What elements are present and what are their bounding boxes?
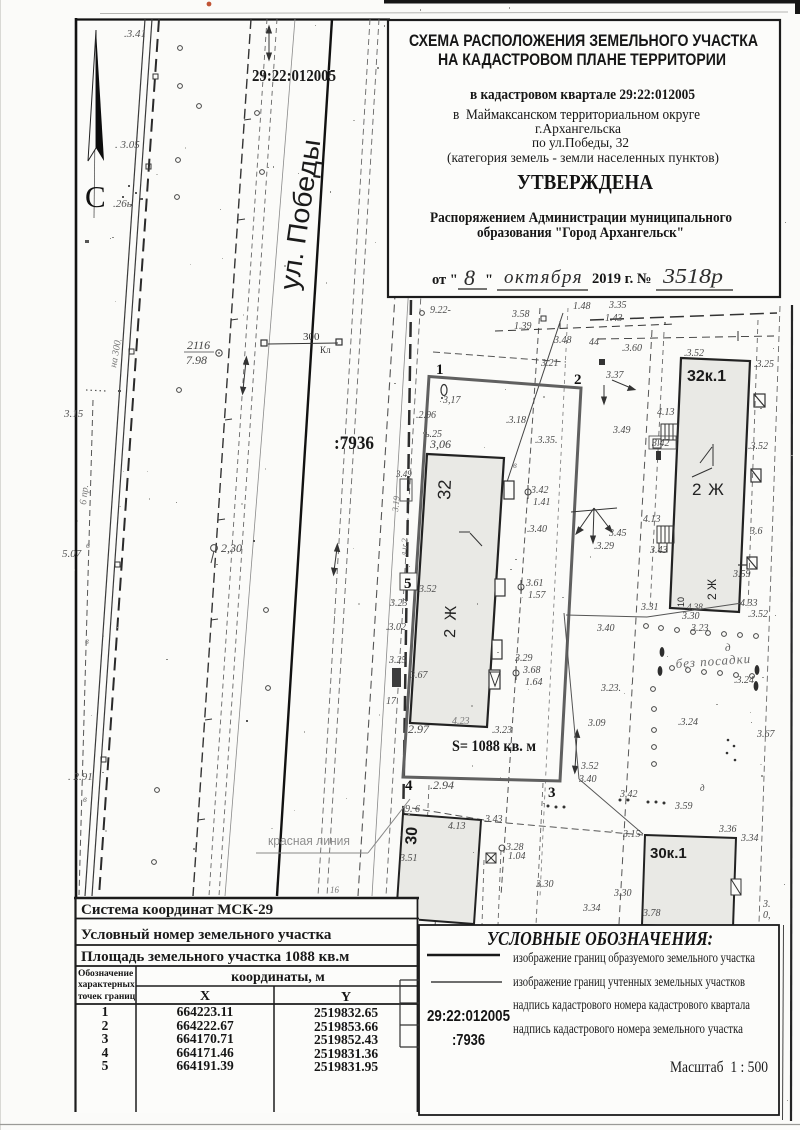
svg-text:(категория земель - земли насе: (категория земель - земли населенных пун… [447, 151, 719, 166]
svg-text:3.34: 3.34 [582, 903, 601, 914]
svg-text:3.30: 3.30 [613, 888, 632, 899]
svg-text:9. 6: 9. 6 [405, 804, 420, 815]
svg-text:3.6: 3.6 [749, 526, 763, 537]
svg-text:1.41: 1.41 [533, 497, 551, 508]
svg-text:в: в [83, 794, 87, 804]
svg-text:2519831.95: 2519831.95 [314, 1059, 378, 1074]
svg-text:Система координат МСК-29: Система координат МСК-29 [81, 902, 273, 918]
svg-text:3.15: 3.15 [63, 408, 84, 420]
svg-text:.3.18: .3.18 [506, 415, 526, 426]
svg-text:характерных: характерных [78, 980, 135, 990]
svg-text:в Маймаксанском территориальн: в Маймаксанском территориальном округе [453, 107, 700, 123]
svg-text:29:22:012005: 29:22:012005 [427, 1008, 510, 1025]
svg-text:3.59: 3.59 [732, 569, 751, 580]
svg-text:по ул.Победы, 32: по ул.Победы, 32 [532, 136, 629, 151]
svg-text:664223.11: 664223.11 [177, 1004, 234, 1019]
svg-text:.3.41: .3.41 [124, 28, 146, 40]
svg-text:.3.02: .3.02 [386, 622, 406, 633]
svg-text:.2.96: .2.96 [416, 410, 436, 421]
svg-text:октября: октября [504, 267, 583, 288]
svg-text:Условный номер земельного учас: Условный номер земельного участка [81, 927, 332, 943]
svg-text:1.48: 1.48 [573, 301, 591, 312]
svg-text:6 пр.: 6 пр. [78, 484, 91, 505]
svg-text:3.30: 3.30 [681, 611, 700, 622]
svg-text:": " [485, 272, 493, 288]
svg-text:7.98: 7.98 [186, 353, 207, 367]
svg-text:красная линия: красная линия [268, 833, 350, 848]
svg-text:3.15: 3.15 [622, 829, 641, 840]
svg-text:Площадь земельного участка 108: Площадь земельного участка 1088 кв.м [81, 949, 349, 965]
svg-text:л и 2: л и 2 [398, 537, 410, 557]
svg-text:НА КАДАСТРОВОМ ПЛАНЕ ТЕРРИТОРИ: НА КАДАСТРОВОМ ПЛАНЕ ТЕРРИТОРИИ [438, 51, 726, 69]
svg-text:надпись кадастрового номера ка: надпись кадастрового номера кадастрового… [513, 997, 750, 1012]
svg-text:1.43: 1.43 [605, 313, 623, 324]
svg-text:5: 5 [102, 1058, 109, 1073]
svg-text:Y: Y [341, 990, 351, 1005]
svg-text:3.45: 3.45 [608, 528, 627, 539]
svg-text:3.34: 3.34 [740, 833, 759, 844]
svg-text:3.43: 3.43 [649, 545, 668, 556]
svg-text:1.39: 1.39 [514, 321, 532, 332]
svg-text:.3.29: .3.29 [594, 541, 614, 552]
svg-text:изображение границ образуемого: изображение границ образуемого земельног… [513, 950, 755, 965]
svg-text:2 Ж: 2 Ж [705, 579, 719, 600]
svg-text:.3.24: .3.24 [678, 717, 698, 728]
svg-text:3.37: 3.37 [605, 370, 625, 381]
svg-text:4.13: 4.13 [448, 821, 466, 832]
svg-text:3.09: 3.09 [587, 718, 606, 729]
svg-text:.3.35.: .3.35. [535, 435, 558, 446]
svg-text:3.21: 3.21 [540, 358, 559, 369]
svg-text:5.07: 5.07 [62, 548, 82, 560]
svg-text:г.Архангельска: г.Архангельска [535, 122, 622, 137]
svg-text:29:22:012005: 29:22:012005 [252, 66, 336, 85]
svg-text:3.58: 3.58 [511, 309, 530, 320]
svg-text:надпись кадастрового номера зе: надпись кадастрового номера земельного у… [513, 1021, 743, 1036]
svg-text:0,: 0, [763, 910, 771, 921]
svg-text:30к.1: 30к.1 [650, 845, 687, 862]
svg-text:2,30: 2,30 [221, 541, 242, 555]
svg-text:1: 1 [102, 1004, 109, 1019]
svg-text:Распоряжением Администрации му: Распоряжением Администрации муниципально… [430, 210, 732, 226]
svg-text:Обозначение: Обозначение [78, 968, 133, 979]
svg-text:300: 300 [303, 331, 320, 343]
svg-text:3.49: 3.49 [612, 425, 631, 436]
svg-text:4.38: 4.38 [687, 602, 703, 612]
svg-text:образования "Город Архангельск: образования "Город Архангельск" [477, 225, 684, 241]
svg-text:3.40: 3.40 [578, 774, 597, 785]
svg-text:2116: 2116 [187, 338, 210, 352]
svg-text:3: 3 [102, 1031, 109, 1046]
svg-text:3.35: 3.35 [608, 300, 627, 311]
svg-text:4.13: 4.13 [643, 514, 661, 525]
svg-text:3,06: 3,06 [429, 437, 451, 451]
svg-text:2019 г. №: 2019 г. № [592, 271, 651, 287]
svg-text:3.48: 3.48 [553, 335, 572, 346]
svg-text:координаты, м: координаты, м [231, 970, 325, 985]
svg-text:. 2.91: . 2.91 [68, 771, 93, 783]
svg-text:УТВЕРЖДЕНА: УТВЕРЖДЕНА [517, 170, 654, 194]
svg-text:S= 1088 кв. м: S= 1088 кв. м [452, 738, 536, 755]
svg-text:3.30: 3.30 [535, 879, 554, 890]
svg-text:3.25: 3.25 [388, 655, 407, 666]
svg-text::7936: :7936 [334, 433, 374, 454]
svg-text:3.52: 3.52 [580, 761, 599, 772]
svg-text:.3.52: .3.52 [684, 348, 704, 359]
svg-text:44: 44 [589, 337, 599, 348]
svg-text:4.23: 4.23 [452, 716, 470, 727]
svg-text:1.04: 1.04 [508, 851, 526, 862]
svg-text:1.57: 1.57 [528, 590, 547, 601]
svg-text:.3.40: .3.40 [527, 524, 547, 535]
svg-text:3.51: 3.51 [399, 853, 418, 864]
svg-text:. 3.05: . 3.05 [115, 139, 140, 151]
svg-text:2.97: 2.97 [408, 722, 430, 736]
svg-text:3.23.: 3.23. [600, 683, 621, 694]
svg-text:2: 2 [574, 372, 582, 388]
svg-text:3.68: 3.68 [522, 665, 541, 676]
svg-text:.3.25: .3.25 [754, 359, 774, 370]
svg-text:.2.94: .2.94 [430, 778, 454, 792]
svg-text::7936: :7936 [452, 1032, 485, 1049]
svg-text:3.42: 3.42 [619, 789, 638, 800]
svg-text:УСЛОВНЫЕ ОБОЗНАЧЕНИЯ:: УСЛОВНЫЕ ОБОЗНАЧЕНИЯ: [487, 928, 713, 950]
svg-text:3.31: 3.31 [640, 602, 659, 613]
svg-text:3.23: 3.23 [690, 623, 709, 634]
svg-text:3.36: 3.36 [718, 824, 737, 835]
svg-text:в кадастровом квартале 29:22:0: в кадастровом квартале 29:22:012005 [470, 87, 695, 103]
svg-text:.26ь: .26ь [113, 198, 132, 210]
svg-text:10: 10 [676, 597, 686, 607]
svg-text:в: в [513, 460, 517, 470]
svg-text:16: 16 [330, 885, 340, 895]
svg-text:Кл: Кл [320, 345, 331, 355]
svg-text:.3.52: .3.52 [748, 609, 768, 620]
svg-text:3.78: 3.78 [642, 908, 661, 919]
svg-text:3.23: 3.23 [389, 598, 408, 609]
svg-text:2 Ж: 2 Ж [442, 603, 460, 638]
svg-text:изображение границ учтенных зе: изображение границ учтенных земельных уч… [513, 974, 745, 989]
svg-text:3.29: 3.29 [514, 653, 533, 664]
svg-text:4.33: 4.33 [740, 598, 758, 609]
svg-text:X: X [200, 989, 210, 1004]
svg-text:3: 3 [548, 785, 556, 801]
svg-text:664191.39: 664191.39 [176, 1058, 234, 1073]
svg-text:3518р: 3518р [662, 264, 723, 288]
svg-text:3.: 3. [762, 899, 771, 910]
svg-text:3.43: 3.43 [484, 814, 503, 825]
svg-text:точек границ: точек границ [78, 992, 136, 1002]
svg-text:3.40: 3.40 [596, 623, 615, 634]
svg-text:17: 17 [386, 696, 397, 707]
svg-text:3.61: 3.61 [525, 578, 544, 589]
svg-text:30: 30 [403, 826, 421, 845]
svg-text:от ": от " [432, 272, 458, 288]
svg-text:д: д [700, 783, 705, 793]
svg-text:4: 4 [405, 778, 413, 794]
svg-text:32: 32 [434, 479, 455, 500]
svg-text:8: 8 [464, 265, 475, 290]
svg-text:9.22-: 9.22- [430, 305, 451, 316]
svg-text:СХЕМА РАСПОЛОЖЕНИЯ ЗЕМЕЛЬНОГО: СХЕМА РАСПОЛОЖЕНИЯ ЗЕМЕЛЬНОГО УЧАСТКА [409, 32, 758, 50]
svg-text:.3.23: .3.23 [492, 725, 512, 736]
svg-text:3.52: 3.52 [418, 584, 437, 595]
svg-text:3,17: 3,17 [442, 395, 462, 406]
svg-text:д: д [725, 642, 731, 654]
svg-text:Масштаб 1 : 500: Масштаб 1 : 500 [670, 1059, 768, 1076]
svg-text:.3.52: .3.52 [748, 441, 768, 452]
svg-text:.3.60: .3.60 [622, 343, 642, 354]
svg-text:3.42: 3.42 [530, 485, 549, 496]
svg-text:1.64: 1.64 [525, 677, 543, 688]
svg-text:3.67: 3.67 [756, 729, 776, 740]
svg-text:3.49: 3.49 [395, 469, 412, 479]
svg-text:.3.24: .3.24 [734, 675, 754, 686]
svg-text:2519852.43: 2519852.43 [314, 1032, 378, 1047]
svg-text:2519832.65: 2519832.65 [314, 1005, 378, 1020]
svg-text:5: 5 [404, 576, 412, 592]
svg-text:1: 1 [436, 362, 444, 378]
svg-text:в: в [85, 636, 89, 646]
svg-text:С: С [85, 179, 106, 214]
svg-text:2 Ж: 2 Ж [692, 480, 725, 499]
svg-text:3.59: 3.59 [674, 801, 693, 812]
svg-text:4.13: 4.13 [657, 407, 675, 418]
svg-text:3.42: 3.42 [651, 438, 670, 449]
svg-text:32к.1: 32к.1 [687, 368, 726, 385]
svg-text:в: в [86, 540, 90, 550]
svg-text:664170.71: 664170.71 [176, 1031, 234, 1046]
svg-text:3.67: 3.67 [409, 670, 429, 681]
